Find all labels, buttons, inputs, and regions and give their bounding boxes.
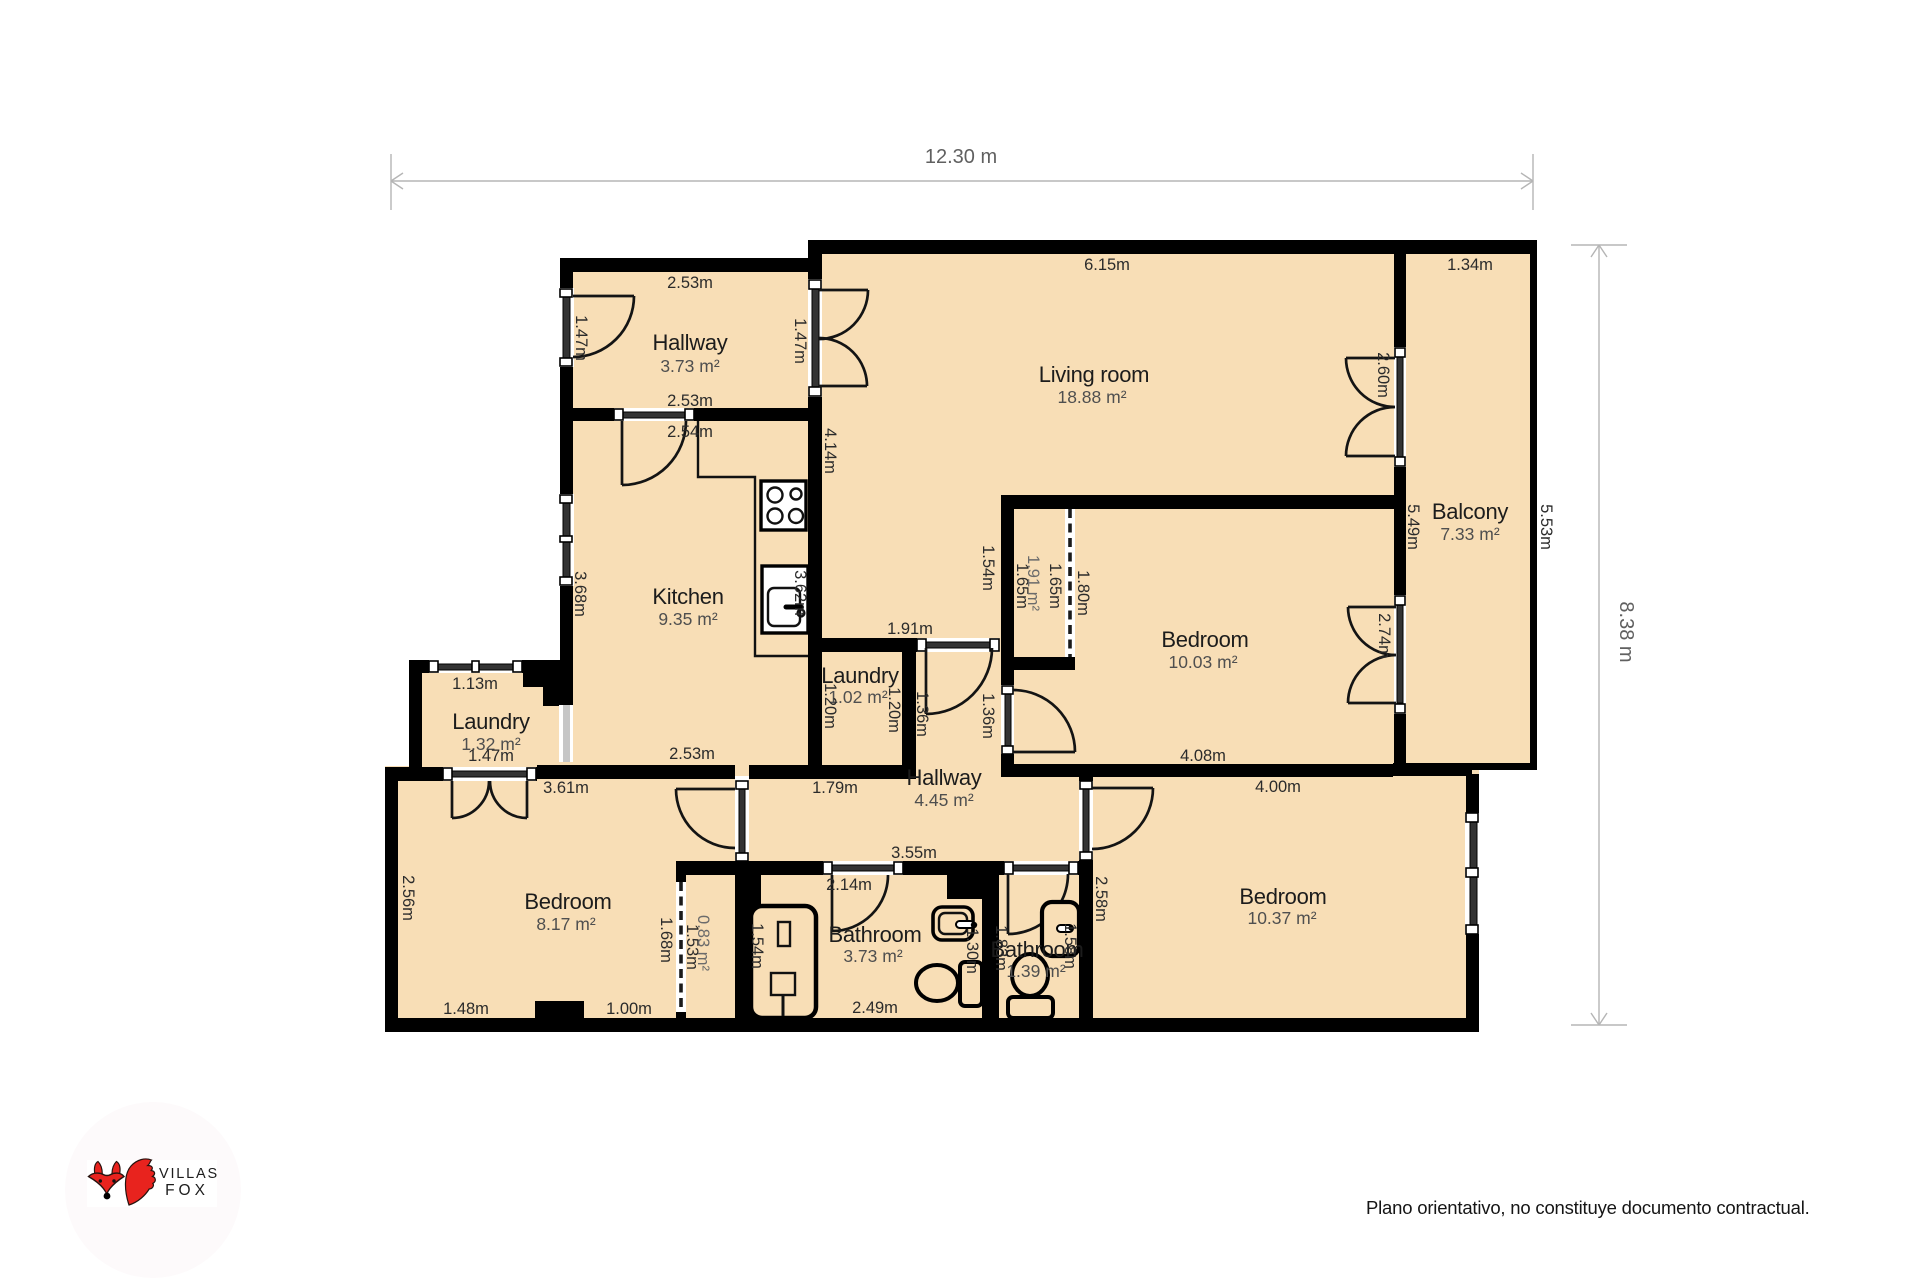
svg-text:8.38 m: 8.38 m xyxy=(1615,601,1637,662)
svg-text:2.53m: 2.53m xyxy=(669,745,715,763)
svg-text:12.30 m: 12.30 m xyxy=(925,146,997,168)
svg-text:1.54m: 1.54m xyxy=(979,545,997,591)
svg-text:1.65m: 1.65m xyxy=(1046,563,1064,609)
svg-text:Bedroom: Bedroom xyxy=(1161,627,1248,652)
svg-text:3.73 m²: 3.73 m² xyxy=(843,946,902,966)
svg-text:Living room: Living room xyxy=(1039,362,1149,387)
svg-text:1.47m: 1.47m xyxy=(468,747,514,765)
svg-text:2.53m: 2.53m xyxy=(667,274,713,292)
svg-text:Plano orientativo, no constitu: Plano orientativo, no constituye documen… xyxy=(1366,1197,1810,1218)
svg-text:1.54m: 1.54m xyxy=(748,923,766,969)
svg-text:1.34m: 1.34m xyxy=(1447,256,1493,274)
svg-text:1.39 m²: 1.39 m² xyxy=(1006,961,1065,981)
svg-text:1.48m: 1.48m xyxy=(443,1000,489,1018)
svg-text:3.62m: 3.62m xyxy=(791,570,809,616)
svg-text:7.33 m²: 7.33 m² xyxy=(1440,524,1499,544)
svg-text:1.80m: 1.80m xyxy=(1074,570,1092,616)
svg-text:0.83 m²: 0.83 m² xyxy=(694,915,712,971)
svg-text:Laundry: Laundry xyxy=(452,709,530,734)
svg-text:VILLAS: VILLAS xyxy=(159,1166,219,1182)
svg-text:5.53m: 5.53m xyxy=(1537,504,1555,550)
svg-text:10.03 m²: 10.03 m² xyxy=(1168,652,1237,672)
svg-text:1.30m: 1.30m xyxy=(963,928,981,974)
svg-text:1.47m: 1.47m xyxy=(791,318,809,364)
svg-text:4.14m: 4.14m xyxy=(821,428,839,474)
svg-text:2.58m: 2.58m xyxy=(1092,876,1110,922)
svg-text:2.53m: 2.53m xyxy=(667,392,713,410)
svg-text:2.54m: 2.54m xyxy=(667,423,713,441)
svg-text:1.00m: 1.00m xyxy=(606,1000,652,1018)
svg-text:1.20m: 1.20m xyxy=(885,687,903,733)
svg-text:1.36m: 1.36m xyxy=(913,691,931,737)
svg-text:Hallway: Hallway xyxy=(907,765,982,790)
svg-text:10.37 m²: 10.37 m² xyxy=(1247,908,1316,928)
svg-text:1.47m: 1.47m xyxy=(572,315,590,361)
svg-text:1.36m: 1.36m xyxy=(979,693,997,739)
svg-text:1.20m: 1.20m xyxy=(821,683,839,729)
svg-text:Kitchen: Kitchen xyxy=(652,584,723,609)
svg-text:2.60m: 2.60m xyxy=(1374,352,1392,398)
svg-text:Balcony: Balcony xyxy=(1432,499,1508,524)
svg-text:1.13m: 1.13m xyxy=(452,675,498,693)
svg-text:FOX: FOX xyxy=(165,1182,209,1199)
svg-text:Hallway: Hallway xyxy=(653,330,728,355)
svg-text:9.35 m²: 9.35 m² xyxy=(658,609,717,629)
svg-text:18.88 m²: 18.88 m² xyxy=(1057,387,1126,407)
svg-text:2.74m: 2.74m xyxy=(1375,613,1393,659)
svg-text:6.15m: 6.15m xyxy=(1084,256,1130,274)
svg-text:3.61m: 3.61m xyxy=(543,779,589,797)
svg-text:8.17 m²: 8.17 m² xyxy=(536,914,595,934)
svg-text:Bedroom: Bedroom xyxy=(1239,884,1326,909)
svg-text:Bathroom: Bathroom xyxy=(829,922,922,947)
svg-text:5.49m: 5.49m xyxy=(1404,504,1422,550)
svg-text:1.91 m²: 1.91 m² xyxy=(1024,555,1042,611)
svg-text:1.58m: 1.58m xyxy=(1061,923,1079,969)
svg-text:2.14m: 2.14m xyxy=(826,876,872,894)
svg-text:4.08m: 4.08m xyxy=(1180,747,1226,765)
svg-text:3.73 m²: 3.73 m² xyxy=(660,356,719,376)
svg-text:1.83m: 1.83m xyxy=(992,925,1010,971)
svg-text:1.79m: 1.79m xyxy=(812,779,858,797)
svg-text:4.00m: 4.00m xyxy=(1255,778,1301,796)
svg-text:3.68m: 3.68m xyxy=(571,571,589,617)
svg-text:1.91m: 1.91m xyxy=(887,620,933,638)
svg-text:2.56m: 2.56m xyxy=(399,875,417,921)
svg-text:1.68m: 1.68m xyxy=(657,917,675,963)
svg-text:3.55m: 3.55m xyxy=(891,844,937,862)
svg-text:2.49m: 2.49m xyxy=(852,999,898,1017)
svg-text:4.45 m²: 4.45 m² xyxy=(914,790,973,810)
svg-text:Bedroom: Bedroom xyxy=(524,889,611,914)
